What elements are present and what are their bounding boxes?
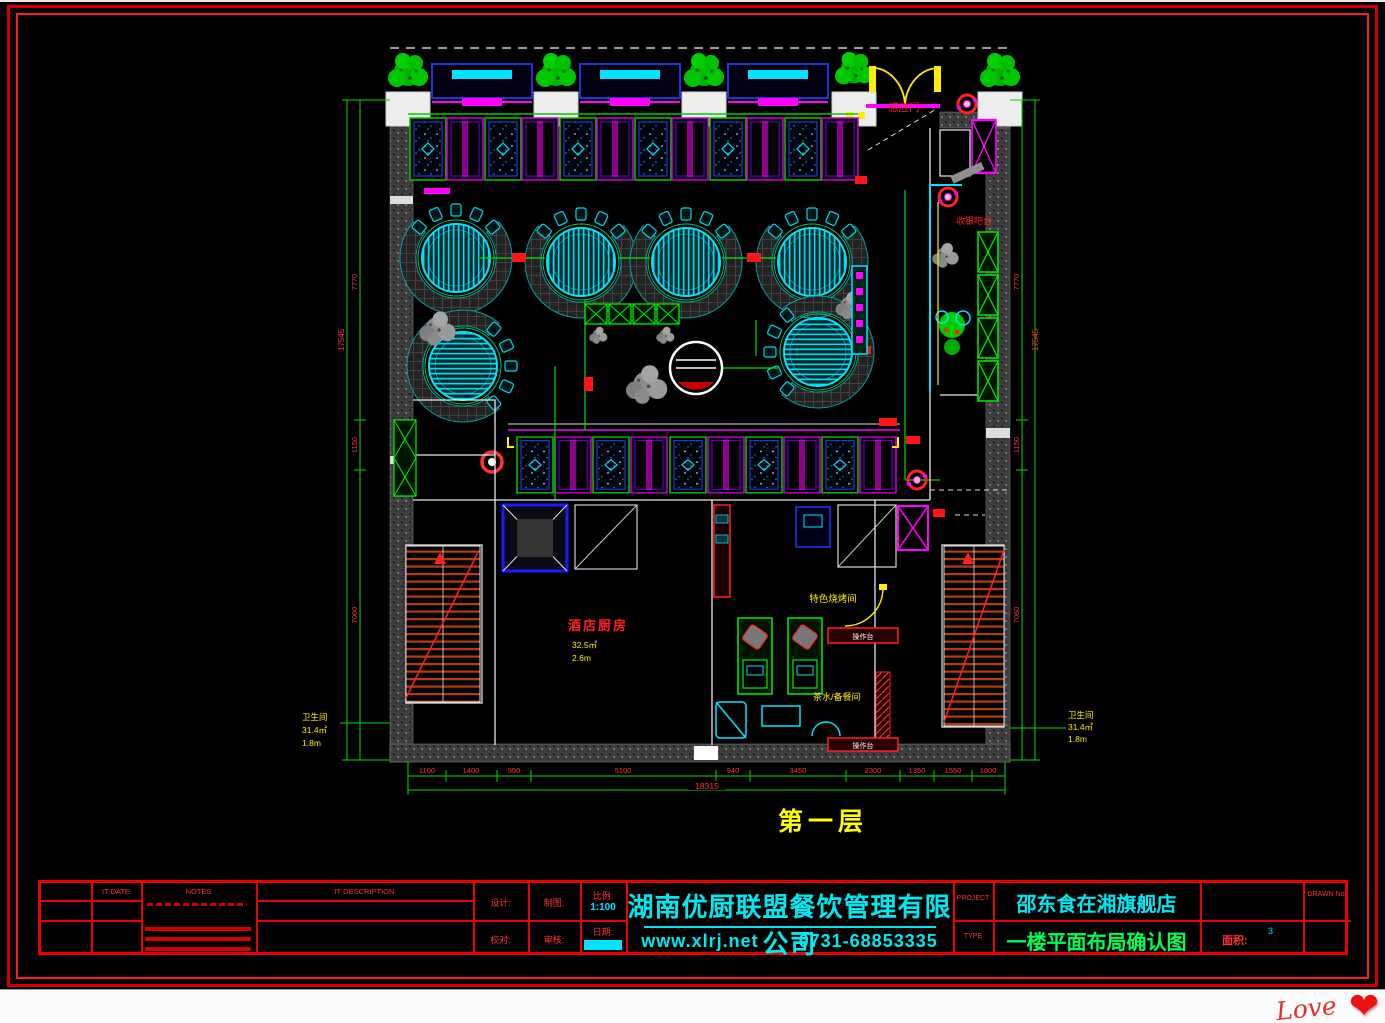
special-room-label: 特色烧烤间 [809,593,857,605]
title-block: IT DATE NOTES IT DESCRIPTION 设计: 制图: 比例:… [38,880,1348,955]
bottom-strip: Love ❤ [0,989,1385,1023]
dim-total-left: 17545 [337,328,346,351]
svg-text:1550: 1550 [945,766,962,775]
kitchen-area-label: 32.5㎡ [572,640,598,650]
svg-text:1100: 1100 [419,766,435,775]
svg-text:7060: 7060 [1012,607,1021,624]
rev-notes-header: NOTES [141,887,256,896]
field-scale: 比例: [580,889,626,902]
floor-plan: 感应门 收银吧台 酒店厨房 32.5㎡ 2.6m 特色烧烤间 茶水/备餐间 操作… [0,0,1385,1023]
tb-divider [953,883,955,952]
shelf-left [394,420,416,496]
floor-title: 第一层 [778,807,868,836]
sofa-set [716,702,840,738]
rev-desc-header: IT DESCRIPTION [256,887,473,896]
svg-text:31.4㎡: 31.4㎡ [1068,722,1094,732]
note-line [145,947,251,951]
svg-text:1800: 1800 [980,766,997,775]
project-name: 邵东食在湘旗舰店 [993,888,1200,917]
area-value: 3 [1268,926,1273,936]
company-website: www.xlrj.net [641,931,758,951]
sheet-label: TYPE [953,933,993,940]
svg-text:1150: 1150 [350,437,359,453]
toilet-right-label: 卫生间 31.4㎡ 1.8m [1010,710,1094,744]
field-draft: 制图: [528,896,580,909]
svg-text:2300: 2300 [865,766,882,775]
area-label: 面积: [1222,932,1248,948]
field-check: 校对: [473,933,528,946]
company-underline [644,926,936,928]
auto-door-label: 感应门 [888,101,920,114]
note-line [145,937,251,941]
plant-color [936,311,970,355]
desk [788,618,822,694]
kitchen-label: 酒店厨房 [568,618,628,633]
round-table [525,208,637,318]
svg-text:7770: 7770 [1012,274,1021,291]
dimension-bottom: 1100 1400 950 5100 940 3450 2300 1350 15… [408,762,1005,795]
svg-text:940: 940 [727,766,740,775]
kitchen [503,505,896,571]
date-value-box [584,940,622,950]
pantry-label: 茶水/备餐间 [813,691,861,702]
svg-text:7770: 7770 [350,274,359,291]
dimension-left: 7770 1150 7060 17545 [337,100,390,760]
svg-text:1150: 1150 [1012,437,1021,453]
stair-left [406,546,480,702]
stair-right [944,546,1004,726]
desk [738,618,772,694]
love-signature: Love [1275,991,1338,1023]
storefront-windows [408,64,858,114]
dim-total-right: 17545 [1031,328,1040,351]
note-line [145,927,251,931]
sheet-name: 一楼平面布局确认图 [993,926,1200,955]
project-label: PROJECT [953,895,993,902]
cashier-label: 收银吧台 [956,215,992,226]
field-date: 日期: [580,925,626,938]
office [714,505,887,738]
svg-text:卫生间: 卫生间 [1068,710,1094,720]
rev-date-header: IT DATE [91,887,141,896]
dimension-right: 7770 1150 7060 17545 [1010,100,1040,760]
svg-text:5100: 5100 [615,766,632,775]
worktop-label: 操作台 [853,632,874,641]
round-table [630,208,742,318]
kitchen-height-label: 2.6m [572,653,591,663]
booth-row-middle [508,424,900,493]
screen-partition [852,266,867,354]
tb-divider [256,900,473,902]
dim-total-bottom: 18315 [695,781,719,791]
svg-text:31.4㎡: 31.4㎡ [302,725,328,735]
flower-icon [957,95,977,113]
leader-line [868,108,938,150]
svg-text:1.8m: 1.8m [302,738,321,748]
booth-row-top [410,118,858,180]
svg-text:1350: 1350 [909,766,926,775]
svg-text:950: 950 [508,766,521,775]
cabinet-x [898,506,928,550]
heart-icon: ❤ [1349,986,1379,1023]
toilet-left-label: 卫生间 31.4㎡ 1.8m [302,712,390,748]
worktop-label: 操作台 [853,741,874,750]
company-phone: 0731-68853335 [799,931,938,951]
tb-divider [41,900,141,902]
svg-text:1.8m: 1.8m [1068,734,1087,744]
scale-value: 1:100 [580,902,626,913]
tb-divider [41,920,141,922]
flower-icon [938,188,958,206]
svg-text:3450: 3450 [790,766,807,775]
note-line [147,903,247,906]
drawn-no-label: DRAWN No. [1303,891,1351,898]
svg-text:1400: 1400 [463,766,480,775]
tb-divider [256,920,626,922]
svg-text:卫生间: 卫生间 [302,712,328,722]
field-design: 设计: [473,896,528,909]
svg-text:7060: 7060 [350,607,359,624]
company-contact: www.xlrj.net 0731-68853335 [626,931,953,952]
field-audit: 审核: [528,933,580,946]
area-cell: 面积: 3 [1200,920,1303,958]
cad-canvas: 感应门 收银吧台 酒店厨房 32.5㎡ 2.6m 特色烧烤间 茶水/备餐间 操作… [0,0,1385,1023]
round-table [400,204,512,314]
